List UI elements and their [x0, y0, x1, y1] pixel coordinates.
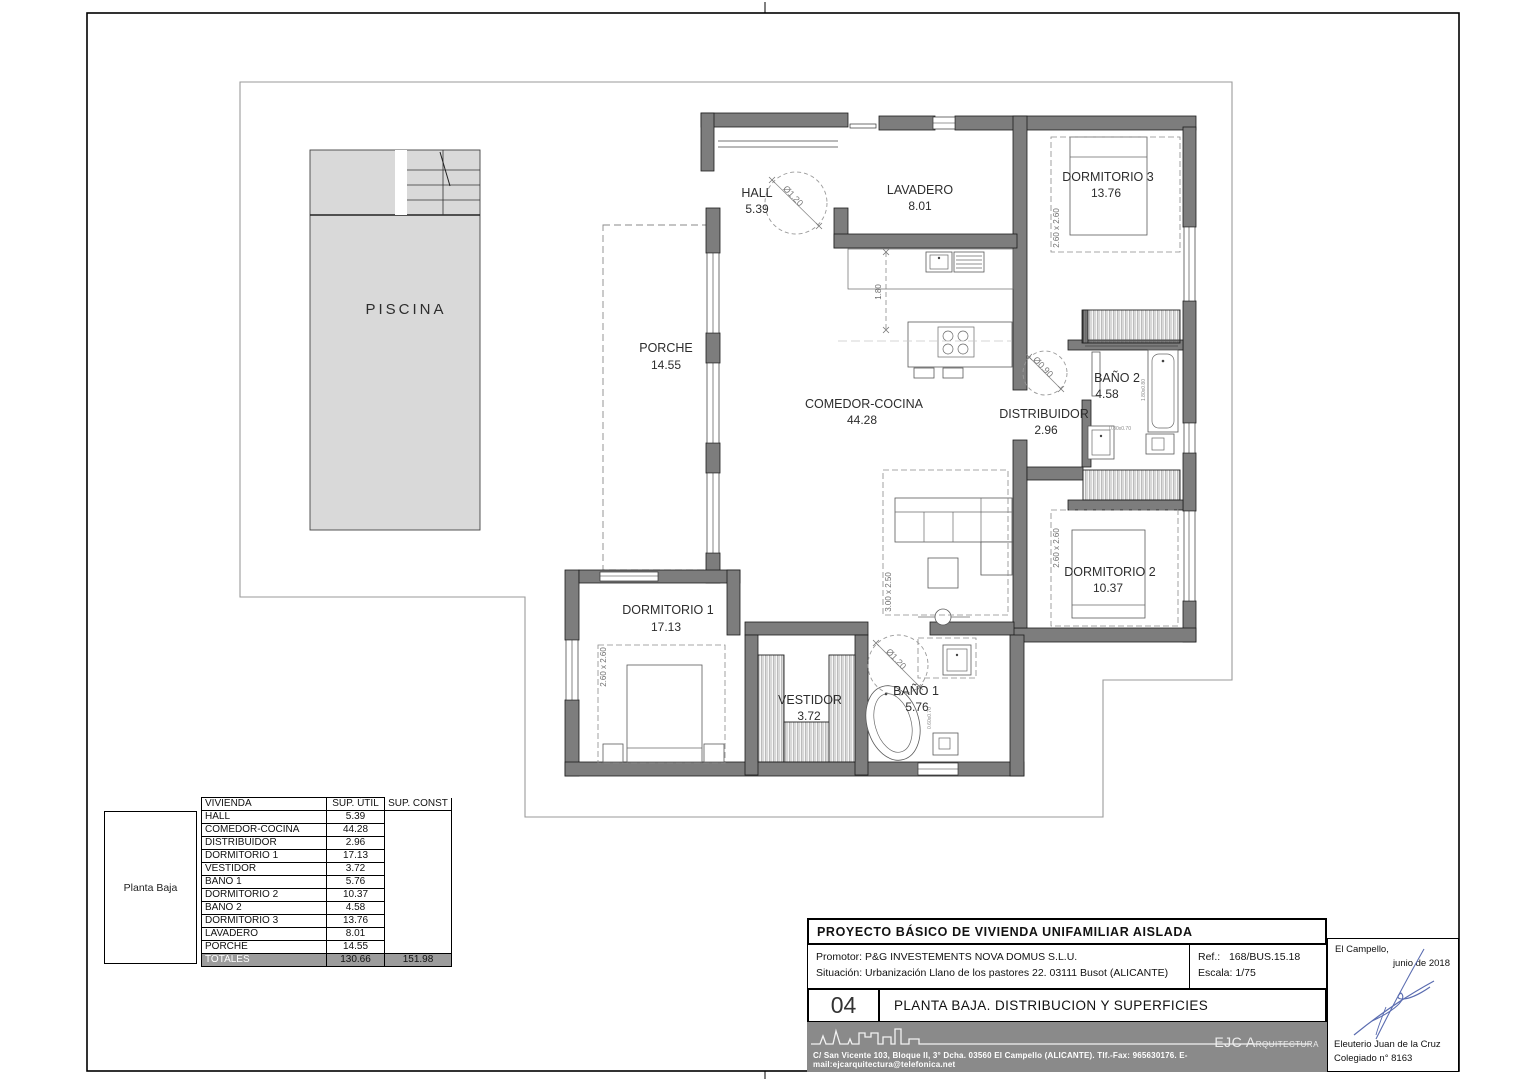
bed-dormitorio1	[603, 665, 724, 762]
signature-icon	[1346, 947, 1446, 1043]
table-row: LAVADERO8.01	[202, 928, 452, 941]
table-row: BAÑO 15.76	[202, 876, 452, 889]
room-area-bano2: 4.58	[1095, 387, 1119, 401]
room-area-lavadero: 8.01	[908, 199, 932, 213]
sup-util-cell: 5.76	[327, 876, 385, 889]
sup-const-cell	[385, 876, 452, 889]
surface-table-body: HALL5.39COMEDOR-COCINA44.28DISTRIBUIDOR2…	[202, 811, 452, 954]
room-area-hall: 5.39	[745, 202, 769, 216]
surface-table: VIVIENDA SUP. ÚTIL SUP. CONST HALL5.39CO…	[201, 797, 452, 967]
room-label-bano1: BAÑO 1	[893, 684, 939, 698]
plan-title-box: 04 PLANTA BAJA. DISTRIBUCION Y SUPERFICI…	[807, 988, 1327, 1023]
sup-const-cell	[385, 941, 452, 954]
floor-label: Planta Baja	[124, 882, 178, 894]
sup-util-cell: 13.76	[327, 915, 385, 928]
table-row: DORMITORIO 313.76	[202, 915, 452, 928]
room-area-bano1: 5.76	[905, 700, 929, 714]
room-label-distribuidor: DISTRIBUIDOR	[999, 407, 1089, 421]
sup-util-cell: 5.39	[327, 811, 385, 824]
dim-dorm3-bed: 2.60 x 2.60	[1052, 208, 1061, 248]
table-row: DORMITORIO 210.37	[202, 889, 452, 902]
room-cell: BAÑO 2	[202, 902, 327, 915]
totals-label: TOTALES	[202, 954, 327, 967]
dim-bano1-wc: 0.60x0.70	[927, 707, 933, 729]
plan-number: 04	[809, 990, 880, 1021]
room-cell: DORMITORIO 1	[202, 850, 327, 863]
table-row: BAÑO 24.58	[202, 902, 452, 915]
ref-value: 168/BUS.15.18	[1229, 951, 1300, 963]
room-cell: LAVADERO	[202, 928, 327, 941]
table-row: DISTRIBUIDOR2.96	[202, 837, 452, 850]
sup-const-cell	[385, 824, 452, 837]
sup-util-cell: 14.55	[327, 941, 385, 954]
dimension-labels: Ø1.20 Ø0.90 Ø1.20 1.80 2.60 x 2.60 2.60 …	[599, 184, 1147, 729]
sup-const-cell	[385, 889, 452, 902]
room-cell: DORMITORIO 2	[202, 889, 327, 902]
drawing-sheet: { "drawing": { "rooms": { "piscina": {"n…	[0, 0, 1527, 1080]
dim-bano1-door: Ø1.20	[884, 647, 908, 672]
col-header-sup-const: SUP. CONST	[385, 798, 452, 811]
room-cell: DISTRIBUIDOR	[202, 837, 327, 850]
room-cell: BAÑO 1	[202, 876, 327, 889]
toilet-bano1	[933, 733, 958, 755]
kitchen-island	[908, 322, 1012, 378]
room-cell: HALL	[202, 811, 327, 824]
room-area-dormitorio2: 10.37	[1093, 581, 1123, 595]
studio-banner: EJC ARQUITECTURA C/ San Vicente 103, Blo…	[807, 1022, 1327, 1072]
sup-const-cell	[385, 811, 452, 824]
table-header-row: VIVIENDA SUP. ÚTIL SUP. CONST	[202, 798, 452, 811]
escala-label: Escala:	[1198, 967, 1232, 979]
porch-outline	[603, 225, 712, 570]
architect-name: Eleuterio Juan de la Cruz	[1334, 1039, 1441, 1050]
project-info-box: Promotor: P&G INVESTEMENTS NOVA DOMUS S.…	[807, 944, 1327, 989]
studio-initials: EJC A	[1214, 1034, 1255, 1050]
totals-sup-util: 130.66	[327, 954, 385, 967]
room-label-hall: HALL	[741, 186, 772, 200]
sup-util-cell: 44.28	[327, 824, 385, 837]
totals-sup-const: 151.98	[385, 954, 452, 967]
sup-util-cell: 3.72	[327, 863, 385, 876]
room-label-dormitorio2: DORMITORIO 2	[1064, 565, 1155, 579]
col-header-sup-util: SUP. ÚTIL	[327, 798, 385, 811]
room-cell: COMEDOR-COCINA	[202, 824, 327, 837]
dim-dorm2-bed: 2.60 x 2.60	[1052, 528, 1061, 568]
sink-bano1	[918, 638, 976, 678]
kitchen-counter-sink	[848, 249, 1013, 289]
escala-value: 1/75	[1235, 967, 1255, 979]
room-label-piscina: PISCINA	[365, 301, 446, 318]
room-label-vestidor: VESTIDOR	[778, 693, 842, 707]
table-row: COMEDOR-COCINA44.28	[202, 824, 452, 837]
toilet-bano2	[1146, 434, 1174, 454]
room-label-comedor: COMEDOR-COCINA	[805, 397, 924, 411]
table-totals-row: TOTALES 130.66 151.98	[202, 954, 452, 967]
room-label-dormitorio3: DORMITORIO 3	[1062, 170, 1153, 184]
col-header-vivienda: VIVIENDA	[202, 798, 327, 811]
room-area-distribuidor: 2.96	[1034, 423, 1058, 437]
dim-hall-door: Ø1.20	[781, 184, 805, 209]
project-title: PROYECTO BÁSICO DE VIVIENDA UNIFAMILIAR …	[817, 925, 1193, 939]
signature-box: El Campello, junio de 2018 Eleuterio Jua…	[1327, 938, 1459, 1072]
room-area-porche: 14.55	[651, 358, 681, 372]
project-info-right: Ref.: 168/BUS.15.18 Escala: 1/75	[1189, 945, 1326, 988]
table-row: VESTIDOR3.72	[202, 863, 452, 876]
ref-label: Ref.:	[1198, 951, 1220, 963]
project-info-left: Promotor: P&G INVESTEMENTS NOVA DOMUS S.…	[808, 945, 1189, 988]
dim-bano2-tub: 1.80x0.80	[1141, 379, 1147, 401]
bathtub-bano2	[1148, 350, 1178, 432]
sup-const-cell	[385, 902, 452, 915]
sup-util-cell: 8.01	[327, 928, 385, 941]
room-label-lavadero: LAVADERO	[887, 183, 954, 197]
room-cell: VESTIDOR	[202, 863, 327, 876]
dim-dorm1-bed: 2.60 x 2.60	[599, 647, 608, 687]
room-cell: DORMITORIO 3	[202, 915, 327, 928]
plan-title: PLANTA BAJA. DISTRIBUCION Y SUPERFICIES	[880, 990, 1325, 1021]
sup-util-cell: 10.37	[327, 889, 385, 902]
table-row: DORMITORIO 117.13	[202, 850, 452, 863]
dim-kitchen: 1.80	[874, 284, 883, 300]
room-label-dormitorio1: DORMITORIO 1	[622, 603, 713, 617]
room-cell: PORCHE	[202, 941, 327, 954]
sup-util-cell: 2.96	[327, 837, 385, 850]
room-label-porche: PORCHE	[639, 341, 692, 355]
sup-const-cell	[385, 863, 452, 876]
room-area-dormitorio3: 13.76	[1091, 186, 1121, 200]
sup-const-cell	[385, 915, 452, 928]
situacion-label: Situación:	[816, 967, 862, 979]
room-area-dormitorio1: 17.13	[651, 620, 681, 634]
sup-const-cell	[385, 928, 452, 941]
sup-util-cell: 4.58	[327, 902, 385, 915]
situacion-value: Urbanización Llano de los pastores 22. 0…	[865, 967, 1168, 979]
entry-door-leaf	[850, 124, 876, 128]
studio-rest: RQUITECTURA	[1256, 1040, 1319, 1049]
room-area-vestidor: 3.72	[797, 709, 821, 723]
table-row: HALL5.39	[202, 811, 452, 824]
studio-name: EJC ARQUITECTURA	[1214, 1034, 1319, 1050]
sup-util-cell: 17.13	[327, 850, 385, 863]
project-title-box: PROYECTO BÁSICO DE VIVIENDA UNIFAMILIAR …	[807, 918, 1327, 945]
table-row: PORCHE14.55	[202, 941, 452, 954]
studio-address: C/ San Vicente 103, Bloque II, 3° Dcha. …	[813, 1051, 1327, 1069]
sup-const-cell	[385, 850, 452, 863]
architect-colegiado: Colegiado n° 8163	[1334, 1053, 1412, 1064]
pool	[310, 150, 480, 530]
dim-living-sofa: 3.00 x 2.50	[884, 572, 893, 612]
promotor-label: Promotor:	[816, 951, 862, 963]
sup-const-cell	[385, 837, 452, 850]
promotor-value: P&G INVESTEMENTS NOVA DOMUS S.L.U.	[865, 951, 1077, 963]
floor-label-box: Planta Baja	[104, 811, 197, 964]
dim-distribuidor-door: Ø0.90	[1031, 355, 1055, 380]
dim-bano2-wc: 0.80x0.70	[1109, 426, 1131, 432]
room-area-comedor: 44.28	[847, 413, 877, 427]
coffee-table	[928, 558, 958, 588]
room-label-bano2: BAÑO 2	[1094, 371, 1140, 385]
